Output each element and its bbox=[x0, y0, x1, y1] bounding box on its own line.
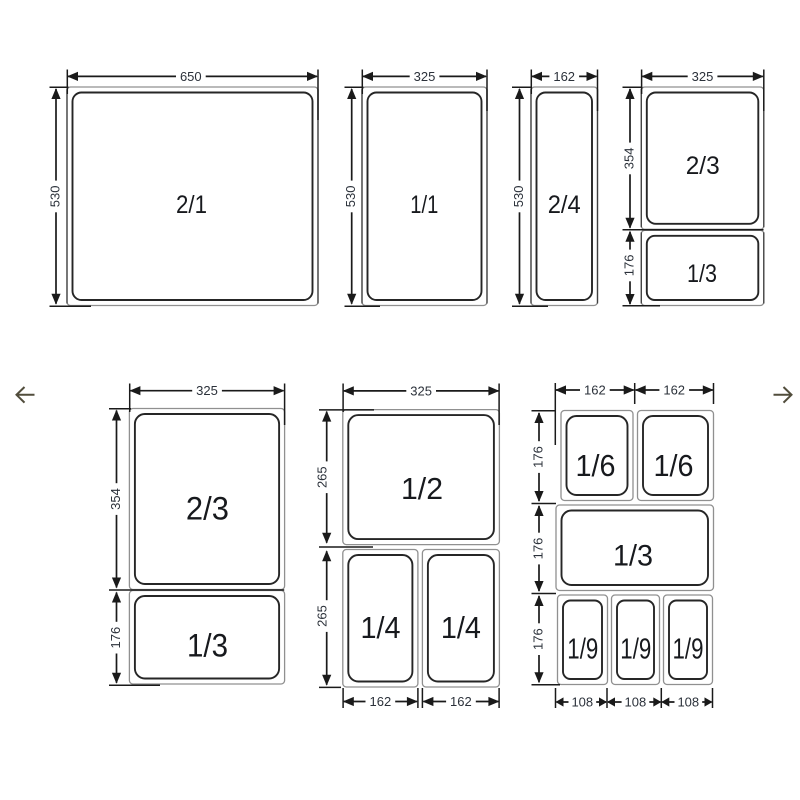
svg-text:2/1: 2/1 bbox=[176, 191, 207, 219]
svg-text:325: 325 bbox=[410, 383, 432, 398]
svg-text:265: 265 bbox=[315, 605, 330, 627]
svg-text:1/2: 1/2 bbox=[401, 471, 443, 506]
svg-text:1/3: 1/3 bbox=[187, 627, 228, 663]
svg-text:1/9: 1/9 bbox=[620, 633, 651, 665]
svg-text:2/4: 2/4 bbox=[548, 191, 581, 219]
svg-text:162: 162 bbox=[450, 694, 472, 709]
svg-text:2/3: 2/3 bbox=[186, 490, 229, 526]
svg-text:2/3: 2/3 bbox=[686, 152, 720, 180]
svg-text:1/3: 1/3 bbox=[613, 540, 653, 573]
svg-text:1/9: 1/9 bbox=[567, 633, 598, 665]
svg-text:108: 108 bbox=[625, 695, 647, 710]
svg-text:108: 108 bbox=[677, 695, 699, 710]
svg-text:176: 176 bbox=[622, 255, 637, 277]
svg-text:162: 162 bbox=[663, 383, 685, 398]
svg-text:354: 354 bbox=[622, 148, 637, 170]
svg-text:108: 108 bbox=[571, 695, 593, 710]
svg-text:176: 176 bbox=[531, 628, 546, 650]
svg-text:530: 530 bbox=[343, 186, 358, 208]
svg-text:1/3: 1/3 bbox=[687, 260, 717, 288]
svg-text:650: 650 bbox=[180, 69, 202, 84]
svg-text:1/6: 1/6 bbox=[576, 448, 616, 483]
svg-text:1/4: 1/4 bbox=[361, 610, 401, 645]
svg-text:162: 162 bbox=[584, 383, 606, 398]
svg-text:325: 325 bbox=[196, 383, 218, 398]
svg-text:1/1: 1/1 bbox=[410, 191, 438, 219]
svg-text:530: 530 bbox=[511, 186, 526, 208]
svg-text:265: 265 bbox=[315, 466, 330, 488]
svg-text:354: 354 bbox=[108, 488, 123, 510]
svg-text:325: 325 bbox=[414, 69, 436, 84]
svg-text:530: 530 bbox=[48, 186, 63, 208]
svg-text:176: 176 bbox=[531, 446, 546, 468]
svg-text:1/4: 1/4 bbox=[441, 610, 481, 645]
svg-text:176: 176 bbox=[108, 627, 123, 649]
svg-text:1/6: 1/6 bbox=[654, 448, 694, 483]
svg-text:176: 176 bbox=[531, 538, 546, 560]
svg-text:1/9: 1/9 bbox=[673, 633, 704, 665]
svg-text:325: 325 bbox=[692, 69, 714, 84]
svg-text:162: 162 bbox=[553, 69, 575, 84]
svg-text:162: 162 bbox=[370, 694, 392, 709]
